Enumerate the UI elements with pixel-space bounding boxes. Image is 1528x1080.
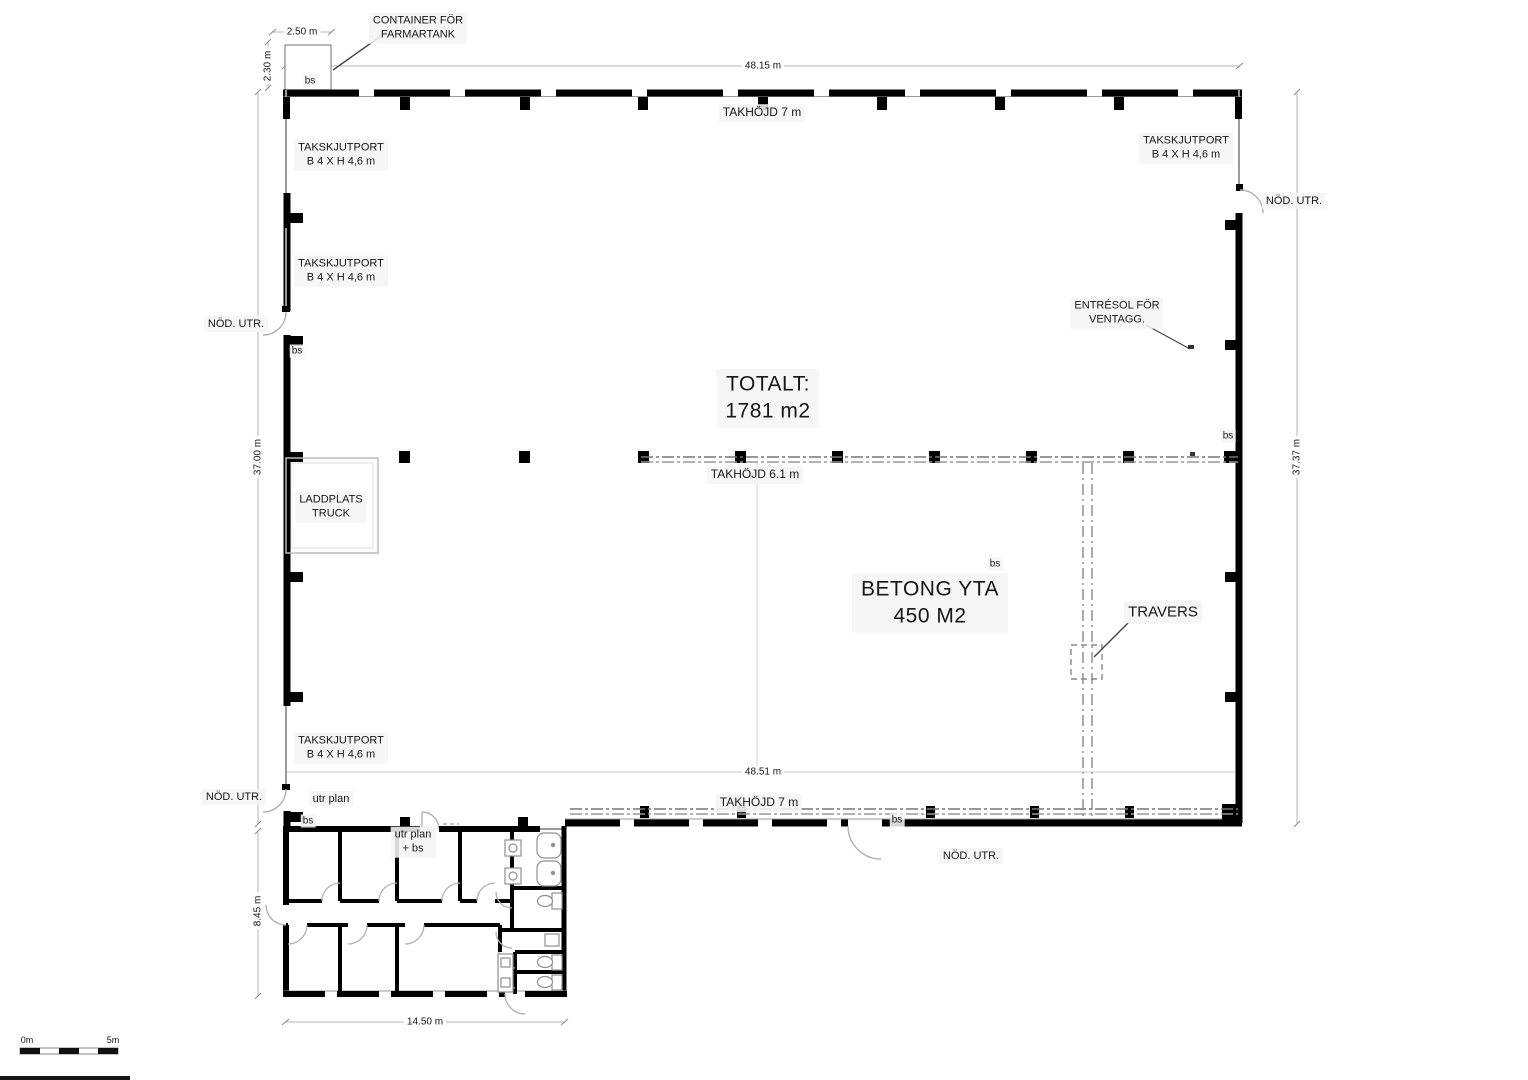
bs-label-mid: bs xyxy=(988,558,1003,571)
toilet-tank xyxy=(552,893,562,909)
travers-label: TRAVERS xyxy=(1124,601,1202,623)
travers-leader-line xyxy=(1094,622,1129,657)
takskjutport-left-2: TAKSKJUTPORT B 4 X H 4,6 m xyxy=(294,256,388,287)
sink xyxy=(545,934,559,946)
columns xyxy=(282,97,1243,829)
utr-plan-label: utr plan xyxy=(309,791,354,807)
toilet-bowl xyxy=(538,957,553,968)
nod-utr-bottom: NÖD. UTR. xyxy=(939,848,1003,864)
bs-label-bottom-door: bs xyxy=(890,814,905,827)
nod-utr-left-top: NÖD. UTR. xyxy=(204,316,268,332)
toilet-tank xyxy=(552,975,562,990)
shower xyxy=(537,861,561,886)
bs-label-container: bs xyxy=(303,75,318,88)
floor-plan-page: CONTAINER FÖR FARMARTANK 2.50 m 2.30 m b… xyxy=(0,0,1528,1080)
door-nod-utr-left-bottom xyxy=(263,789,286,812)
betong-label: BETONG YTA 450 M2 xyxy=(852,574,1008,633)
hall-walls xyxy=(283,90,1242,832)
totalt-label: TOTALT: 1781 m2 xyxy=(716,369,819,428)
shower xyxy=(537,833,561,858)
nod-utr-right-top: NÖD. UTR. xyxy=(1262,193,1326,209)
dim-left-height: 37.00 m xyxy=(252,436,265,478)
entresol-leader-line xyxy=(1146,325,1190,349)
sanitary-fixtures xyxy=(498,833,562,992)
entresol-label: ENTRÉSOL FÖR VENTAGG. xyxy=(1070,298,1163,329)
takhojd-7-bottom: TAKHÖJD 7 m xyxy=(716,794,802,812)
dim-office-height: 8.45 m xyxy=(252,893,265,930)
travers-trolley xyxy=(1071,645,1102,679)
dimension-lines xyxy=(255,29,1300,1025)
takhojd-7-top: TAKHÖJD 7 m xyxy=(719,104,805,122)
scale-bar-end-label: 5m xyxy=(107,1035,120,1047)
travers-track xyxy=(1071,463,1129,816)
door-office-left-exit xyxy=(266,905,286,925)
kitchen-unit xyxy=(498,954,513,992)
sink xyxy=(505,868,521,884)
takskjutport-top-right: TAKSKJUTPORT B 4 X H 4,6 m xyxy=(1139,133,1233,164)
toilet-bowl xyxy=(538,977,553,988)
toilet-bowl xyxy=(538,896,553,907)
utr-plan-bs-label: utr plan + bs xyxy=(391,827,436,858)
dim-container-height: 2.30 m xyxy=(262,48,275,85)
dim-bottom-width: 48.51 m xyxy=(742,766,784,779)
dim-right-height: 37.37 m xyxy=(1291,436,1304,478)
page-edge-mark xyxy=(0,1076,130,1080)
ceiling-zone-lines xyxy=(570,457,1238,814)
nod-utr-left-bottom: NÖD. UTR. xyxy=(202,789,266,805)
bs-label-bottom-left: bs xyxy=(301,815,316,828)
dim-office-width: 14.50 m xyxy=(404,1016,446,1029)
takskjutport-bottom-left: TAKSKJUTPORT B 4 X H 4,6 m xyxy=(294,733,388,764)
takhojd-61: TAKHÖJD 6.1 m xyxy=(707,466,803,484)
bs-label-left: bs xyxy=(290,345,305,358)
floor-plan-drawing xyxy=(0,0,1528,1080)
laddplats-label: LADDPLATS TRUCK xyxy=(295,492,366,523)
dim-top-width: 48.15 m xyxy=(742,60,784,73)
container-label: CONTAINER FÖR FARMARTANK xyxy=(369,13,467,44)
bs-label-right: bs xyxy=(1221,430,1236,443)
takskjutport-top-left: TAKSKJUTPORT B 4 X H 4,6 m xyxy=(294,140,388,171)
sink xyxy=(505,840,521,856)
door-nod-utr-bottom xyxy=(848,826,881,859)
dim-container-width: 2.50 m xyxy=(284,26,321,39)
hall-doors xyxy=(263,190,1263,859)
scale-bar-start-label: 0m xyxy=(21,1035,34,1047)
door-office-bottom-exit xyxy=(505,994,525,1014)
toilet-tank xyxy=(552,955,562,970)
scale-bar xyxy=(20,1048,118,1054)
door-nod-utr-right-top xyxy=(1240,190,1263,213)
